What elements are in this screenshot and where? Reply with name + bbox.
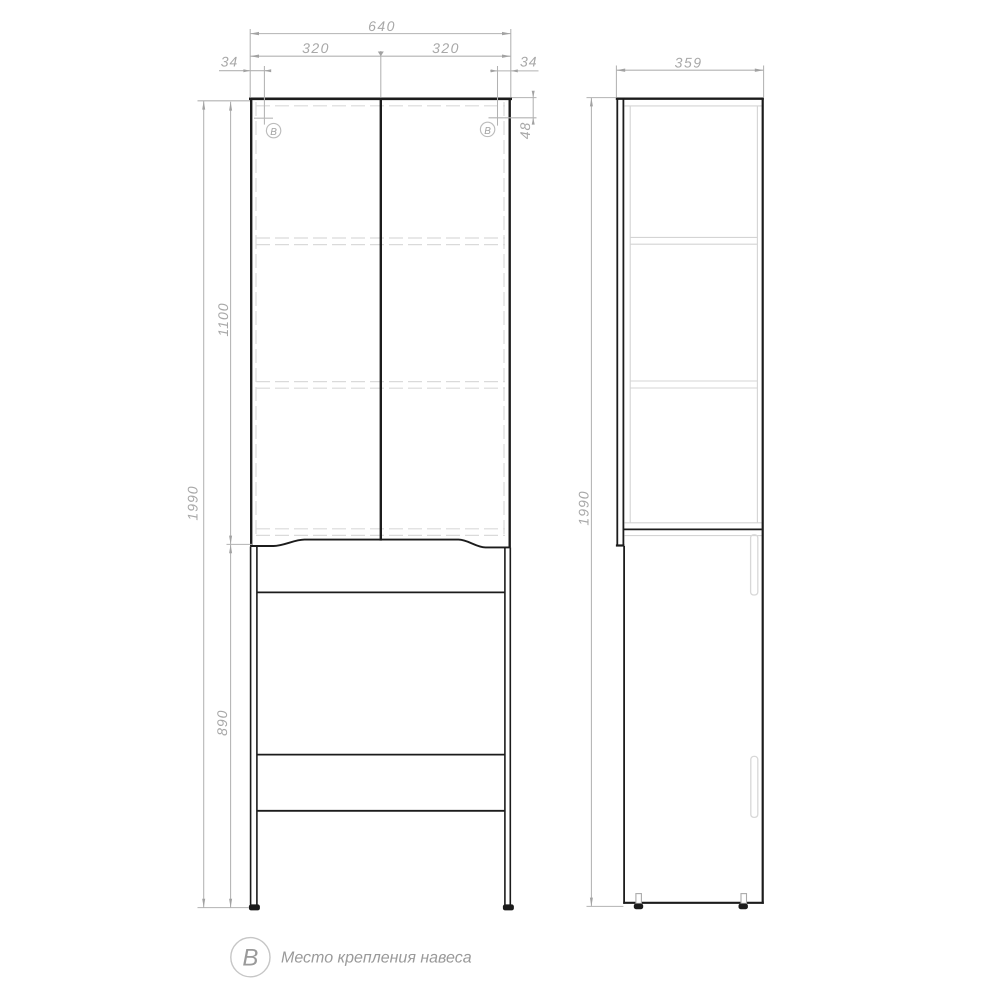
svg-text:Место крепления навеса: Место крепления навеса xyxy=(281,950,472,967)
svg-text:B: B xyxy=(242,945,258,972)
svg-text:B: B xyxy=(270,127,277,138)
svg-text:1990: 1990 xyxy=(184,485,200,520)
svg-text:1100: 1100 xyxy=(215,302,231,336)
svg-text:359: 359 xyxy=(675,54,703,70)
svg-text:640: 640 xyxy=(368,18,396,34)
svg-text:B: B xyxy=(484,126,491,137)
svg-text:320: 320 xyxy=(302,40,330,56)
svg-text:1990: 1990 xyxy=(575,490,591,525)
svg-text:48: 48 xyxy=(517,122,533,140)
svg-text:34: 34 xyxy=(520,54,538,70)
svg-text:34: 34 xyxy=(221,53,239,69)
svg-text:890: 890 xyxy=(214,710,230,736)
svg-text:320: 320 xyxy=(432,40,460,56)
